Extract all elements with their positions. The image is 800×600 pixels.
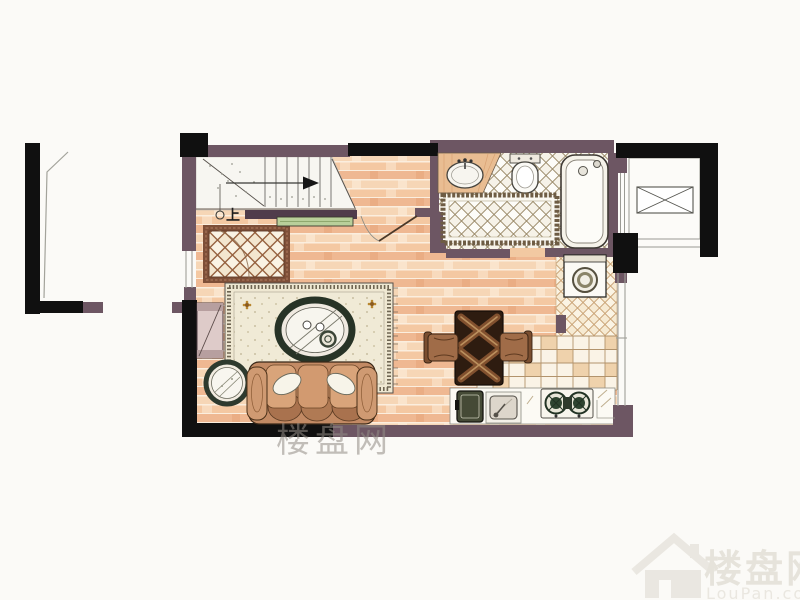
floor-plan-canvas: 上 bbox=[0, 0, 800, 600]
washing-machine bbox=[564, 255, 606, 297]
elevator-shaft-icon bbox=[637, 187, 693, 213]
watermark-center-text: 楼盘网 bbox=[276, 421, 393, 461]
oven bbox=[455, 391, 483, 422]
kitchen-window bbox=[616, 273, 627, 406]
watermark-center: 楼盘网 bbox=[276, 421, 393, 461]
armchair bbox=[197, 303, 223, 358]
floor-plan-drawing: 上 bbox=[0, 0, 800, 600]
bath-mat bbox=[443, 195, 557, 243]
side-table bbox=[206, 362, 248, 404]
watermark-url: LouPan.com bbox=[706, 584, 800, 600]
dining-chair-right bbox=[500, 331, 532, 363]
sofa bbox=[247, 362, 377, 424]
bathtub bbox=[561, 155, 608, 248]
bathroom-door-opening bbox=[510, 248, 545, 257]
kitchen-sink bbox=[486, 392, 521, 423]
toilet bbox=[510, 154, 540, 193]
coffee-table bbox=[278, 300, 352, 360]
watermark-bottom-right: 楼盘网 LouPan.com bbox=[634, 538, 800, 600]
left-window bbox=[186, 251, 192, 288]
entry-tile-area bbox=[203, 225, 290, 283]
stairs-up-label: 上 bbox=[226, 208, 240, 224]
neighbor-wall bbox=[25, 143, 103, 314]
house-icon bbox=[634, 538, 714, 598]
dining-chair-left bbox=[424, 332, 458, 363]
dining-table bbox=[455, 311, 503, 385]
shoe-cabinet bbox=[277, 217, 353, 226]
